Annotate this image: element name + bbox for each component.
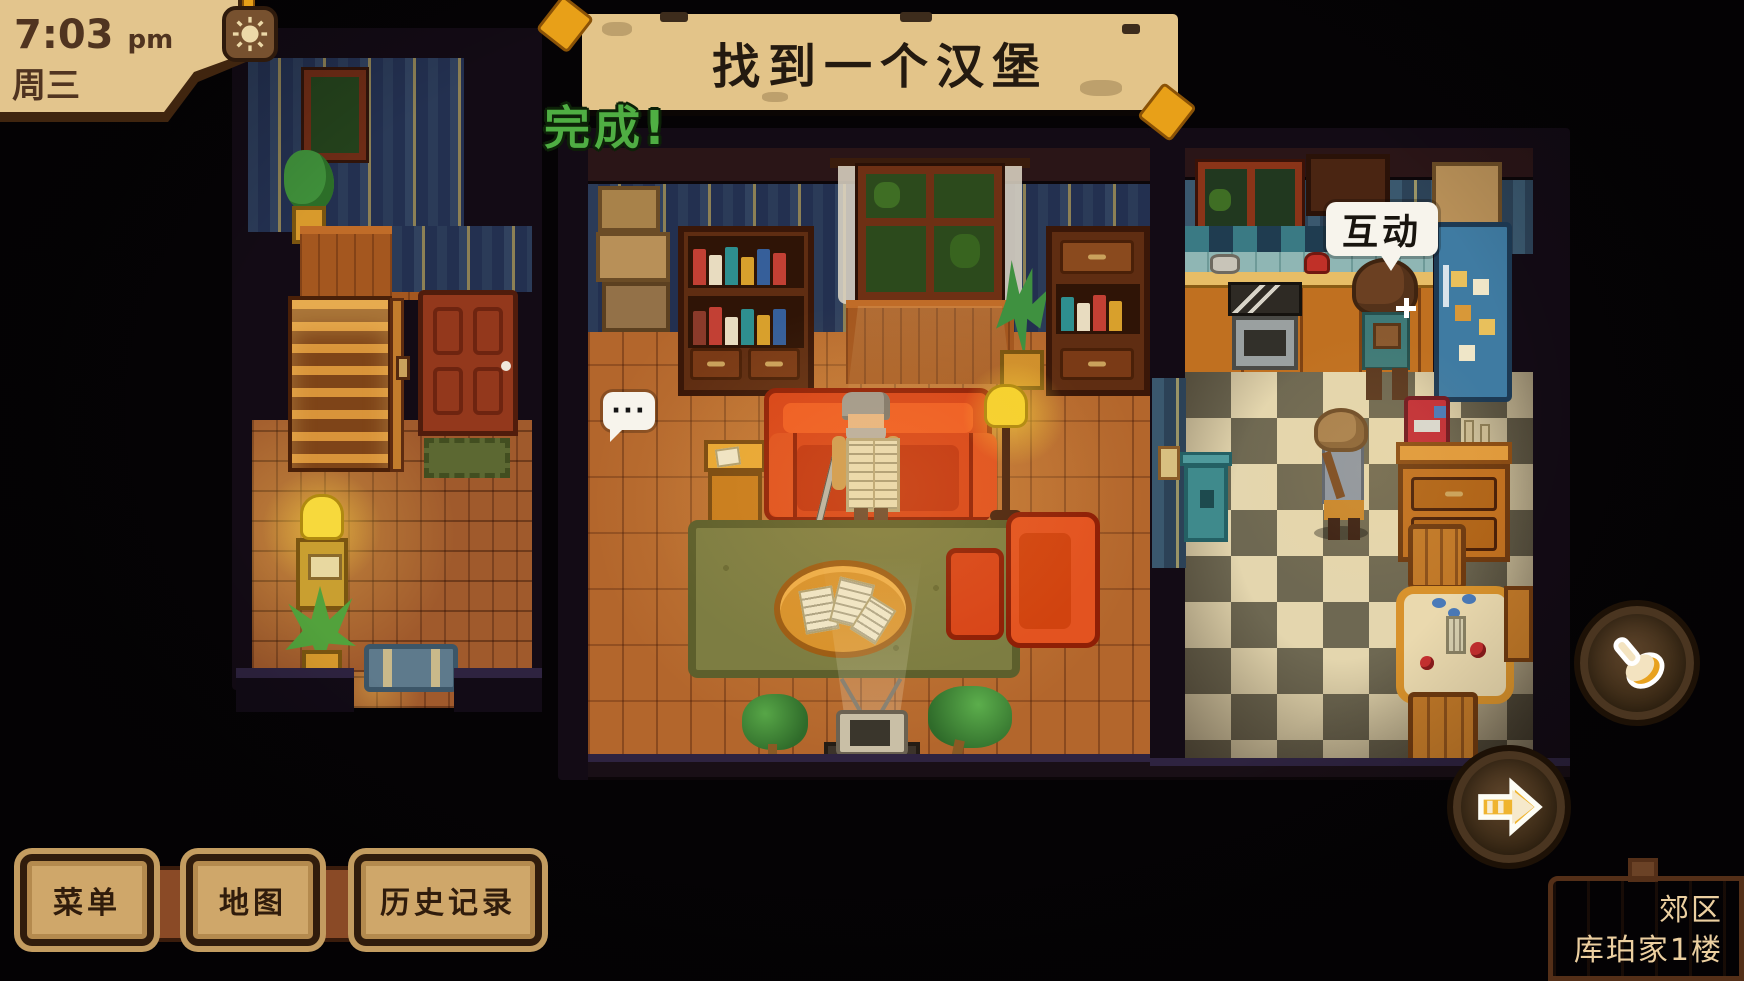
fridge xyxy=(1434,222,1512,402)
map-button[interactable]: 地图 xyxy=(186,854,320,946)
window-mullion xyxy=(926,174,934,292)
stove-cooktop xyxy=(1228,282,1302,316)
npc-backpack xyxy=(1373,323,1401,349)
small-wall-frame xyxy=(1158,446,1180,480)
move-right-button[interactable] xyxy=(1447,745,1571,869)
clock-time: 7:03 xyxy=(14,12,114,58)
cooking-pot xyxy=(1210,254,1240,274)
interact-bubble-label: 互动 xyxy=(1342,203,1422,255)
interact-bubble-tail xyxy=(1380,254,1402,271)
game-viewport: ··· 互动 7:03 pm 周三 xyxy=(0,0,1744,981)
bookshelf-row xyxy=(1056,284,1140,334)
speech-bubble-tail xyxy=(610,428,624,442)
radio-face xyxy=(308,554,342,580)
door-panel xyxy=(433,307,463,355)
clock-day: 周三 xyxy=(12,58,80,107)
cardboard-box xyxy=(602,282,670,332)
couch-arm-left xyxy=(769,433,797,517)
banner-notch xyxy=(1122,24,1140,34)
window-foliage xyxy=(950,234,980,268)
dining-table xyxy=(1396,586,1514,704)
hand-cursor-icon xyxy=(1597,623,1677,703)
dining-chair-right xyxy=(1504,586,1533,662)
coffee-table xyxy=(774,560,912,658)
chest-strap xyxy=(383,649,392,687)
npc-body xyxy=(1362,312,1410,370)
boxes-above-fridge xyxy=(1432,162,1502,226)
player-shorts xyxy=(1324,500,1364,520)
bookshelf-row xyxy=(688,236,804,288)
armchair xyxy=(1006,512,1100,648)
recycle-bin xyxy=(1184,464,1228,542)
player-body[interactable] xyxy=(1322,446,1364,504)
floor-lamp-pole xyxy=(1002,426,1010,514)
flower xyxy=(1462,594,1476,604)
staircase xyxy=(288,296,392,472)
coffee-machine-band xyxy=(1414,420,1440,432)
floor-lamp-shade xyxy=(984,384,1028,428)
hallway-wall-cap-left xyxy=(236,668,354,712)
door-knob xyxy=(501,361,511,371)
speech-bubble-dots: ··· xyxy=(611,406,647,416)
player-leg xyxy=(1348,518,1360,540)
door-panel xyxy=(473,367,503,415)
chest-strap xyxy=(431,649,440,687)
button-post xyxy=(316,866,358,942)
armchair-cushion xyxy=(1019,533,1071,629)
npc-leg xyxy=(1366,368,1382,400)
side-table-top xyxy=(704,440,766,472)
clock-meridiem: pm xyxy=(128,25,174,55)
banner-blotch xyxy=(1080,80,1122,96)
apple xyxy=(1420,656,1434,670)
hallway-door[interactable] xyxy=(418,290,518,436)
dining-chair-top xyxy=(1408,524,1466,590)
banner-notch xyxy=(660,12,688,22)
side-table-cabinet xyxy=(708,472,762,524)
shelf-drawer xyxy=(1060,240,1134,274)
cardboard-box xyxy=(596,232,670,282)
history-button[interactable]: 历史记录 xyxy=(354,854,542,946)
window-mullion xyxy=(866,218,994,226)
location-sign: 郊区 库珀家1楼 xyxy=(1548,876,1744,981)
curtain-left xyxy=(838,166,860,304)
ottoman xyxy=(946,548,1004,640)
menu-button[interactable]: 菜单 xyxy=(20,854,154,946)
bookshelf-row xyxy=(688,296,804,348)
banner-blotch xyxy=(762,92,788,102)
banner-blotch xyxy=(602,22,632,36)
sticky-note xyxy=(1479,319,1495,335)
player-leg xyxy=(1328,518,1340,540)
light-switch xyxy=(396,356,410,380)
sticky-note xyxy=(1473,279,1489,295)
kitchen-window-foliage xyxy=(1209,189,1231,211)
hallway-wall-cap-right xyxy=(454,668,542,712)
location-area: 郊区 xyxy=(1553,891,1723,931)
houseplant-left xyxy=(742,694,808,750)
player-hat xyxy=(1314,408,1368,452)
sideboard-drawer xyxy=(1411,477,1497,511)
bottle xyxy=(1480,424,1490,444)
interact-bubble[interactable]: 互动 xyxy=(1326,202,1438,256)
newspaper xyxy=(846,438,900,512)
arrow-right-icon xyxy=(1470,768,1548,846)
bookshelf-right xyxy=(1046,226,1150,396)
hand-cursor-button[interactable] xyxy=(1574,600,1700,726)
shelf-drawer xyxy=(690,348,742,380)
papers xyxy=(715,446,741,467)
sideboard-top xyxy=(1396,442,1512,464)
door-panel xyxy=(473,307,503,355)
sun-icon xyxy=(231,15,269,53)
window-foliage xyxy=(874,182,900,208)
vase xyxy=(1446,616,1466,654)
livingroom-window xyxy=(858,166,1002,300)
banner-notch xyxy=(900,12,932,22)
livingroom-bottom-wall xyxy=(588,754,1150,780)
quest-banner: 找到一个汉堡 xyxy=(582,14,1178,110)
apple xyxy=(1470,642,1486,658)
coffee-cup xyxy=(1434,406,1446,418)
bookshelf-left xyxy=(678,226,814,396)
fridge-handle xyxy=(1443,265,1449,307)
player-satchel-strap xyxy=(1322,451,1345,499)
sparkle-icon xyxy=(1396,298,1416,318)
tv-screen xyxy=(850,720,890,746)
sticky-note xyxy=(1451,271,1467,287)
cardboard-box xyxy=(598,186,660,232)
daytime-badge xyxy=(222,6,278,62)
window-wainscot xyxy=(846,300,1014,384)
quest-status: 完成! xyxy=(544,92,669,158)
oven-door xyxy=(1232,316,1298,370)
quest-title: 找到一个汉堡 xyxy=(582,14,1178,110)
button-post xyxy=(150,866,190,942)
houseplant-right xyxy=(928,686,1012,748)
doormat xyxy=(424,438,510,478)
table-lamp xyxy=(300,494,344,540)
sticky-note xyxy=(1459,345,1475,361)
flower xyxy=(1432,598,1446,608)
shelf-drawer xyxy=(1060,348,1134,380)
shelf-drawer xyxy=(748,348,800,380)
hallway-door-wall xyxy=(392,226,532,292)
red-kettle xyxy=(1304,252,1330,274)
couch-arm-right xyxy=(969,433,997,517)
television[interactable] xyxy=(836,710,908,756)
oldman-arm xyxy=(832,436,846,490)
door-panel xyxy=(433,367,463,415)
speech-bubble: ··· xyxy=(603,392,655,430)
bottle xyxy=(1464,420,1474,444)
oven-window xyxy=(1244,330,1286,356)
stair-rail xyxy=(390,298,404,472)
location-place: 库珀家1楼 xyxy=(1553,931,1723,971)
npc-leg xyxy=(1392,368,1408,400)
sticky-note xyxy=(1455,305,1471,321)
storage-chest xyxy=(364,644,458,692)
hallway-picture-frame xyxy=(304,70,366,160)
bin-mark xyxy=(1200,490,1214,508)
